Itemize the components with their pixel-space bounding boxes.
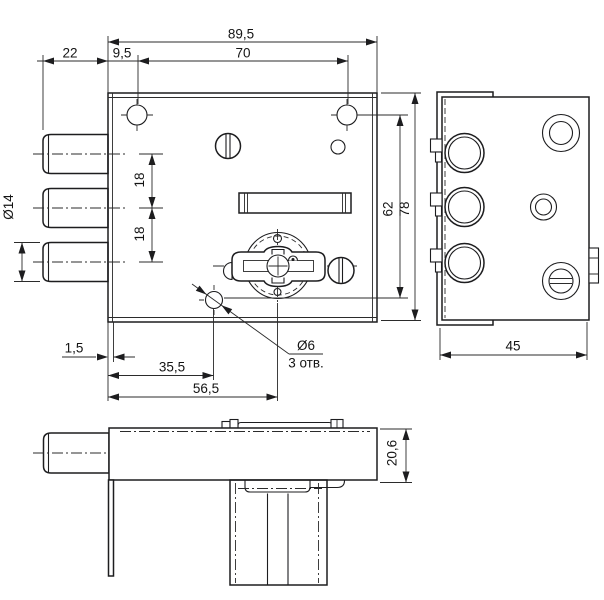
dim-bolt-diameter: Ø14	[1, 194, 16, 220]
dim-bolt-protrusion: 22	[62, 46, 77, 61]
screw-right	[328, 258, 354, 284]
dim-cylinder-offset: 56,5	[193, 381, 219, 396]
dim-faceplate-offset: 1,5	[65, 341, 84, 356]
bottom-view: 20,6	[33, 420, 412, 586]
escutcheon-left-tab	[224, 263, 233, 280]
bottom-raised-strip	[238, 423, 332, 429]
dim-hole-spacing: 70	[235, 46, 250, 61]
screw-upper	[216, 134, 241, 159]
front-view	[33, 93, 377, 322]
bottom-body	[109, 428, 377, 480]
dim-overall-height: 78	[397, 201, 412, 216]
side-bolt-1	[445, 134, 484, 173]
bolt-clips	[431, 139, 443, 272]
side-bolt-3	[445, 244, 484, 283]
dim-bolt-pitch-1: 18	[132, 172, 147, 187]
escutcheon-pin	[289, 256, 298, 261]
side-view: 45	[431, 92, 599, 360]
bottom-dimension: 20,6	[380, 429, 412, 483]
dim-thickness: 20,6	[385, 440, 400, 466]
mount-hole-left	[121, 99, 153, 131]
dim-edge-to-hole: 9,5	[113, 46, 132, 61]
dim-vertical-span: 62	[381, 201, 396, 216]
side-bolt-2	[445, 188, 484, 227]
dim-hole-offset: 35,5	[159, 360, 185, 375]
dim-overall-width: 89,5	[228, 27, 254, 42]
case-inner-edges	[108, 93, 377, 322]
dim-bolt-pitch-2: 18	[132, 226, 147, 241]
side-latch-tab	[589, 248, 599, 283]
dim-drill-count: 3 отв.	[288, 356, 324, 371]
lock-technical-drawing: 89,5 22 9,5 70 Ø14 18 18 62 78 1,5 35,5	[0, 0, 604, 600]
rivet-hole	[331, 140, 345, 154]
bottom-faceplate	[109, 480, 114, 576]
bottom-tab-1	[222, 420, 238, 429]
mount-hole-right	[331, 99, 357, 131]
dim-depth: 45	[505, 339, 520, 354]
bottom-tab-2	[331, 420, 343, 429]
keyway-boss-bottom	[272, 278, 284, 284]
drawing-canvas: 89,5 22 9,5 70 Ø14 18 18 62 78 1,5 35,5	[0, 0, 604, 600]
hasp-slot	[239, 193, 351, 213]
dim-drill-diameter: Ø6	[297, 338, 315, 353]
side-dimension: 45	[440, 322, 587, 360]
bottom-cylinder-housing	[230, 480, 345, 585]
keyway-boss-top	[272, 250, 284, 255]
lock-case-outline	[108, 93, 377, 322]
drill-note: Ø6 3 отв.	[192, 284, 324, 371]
